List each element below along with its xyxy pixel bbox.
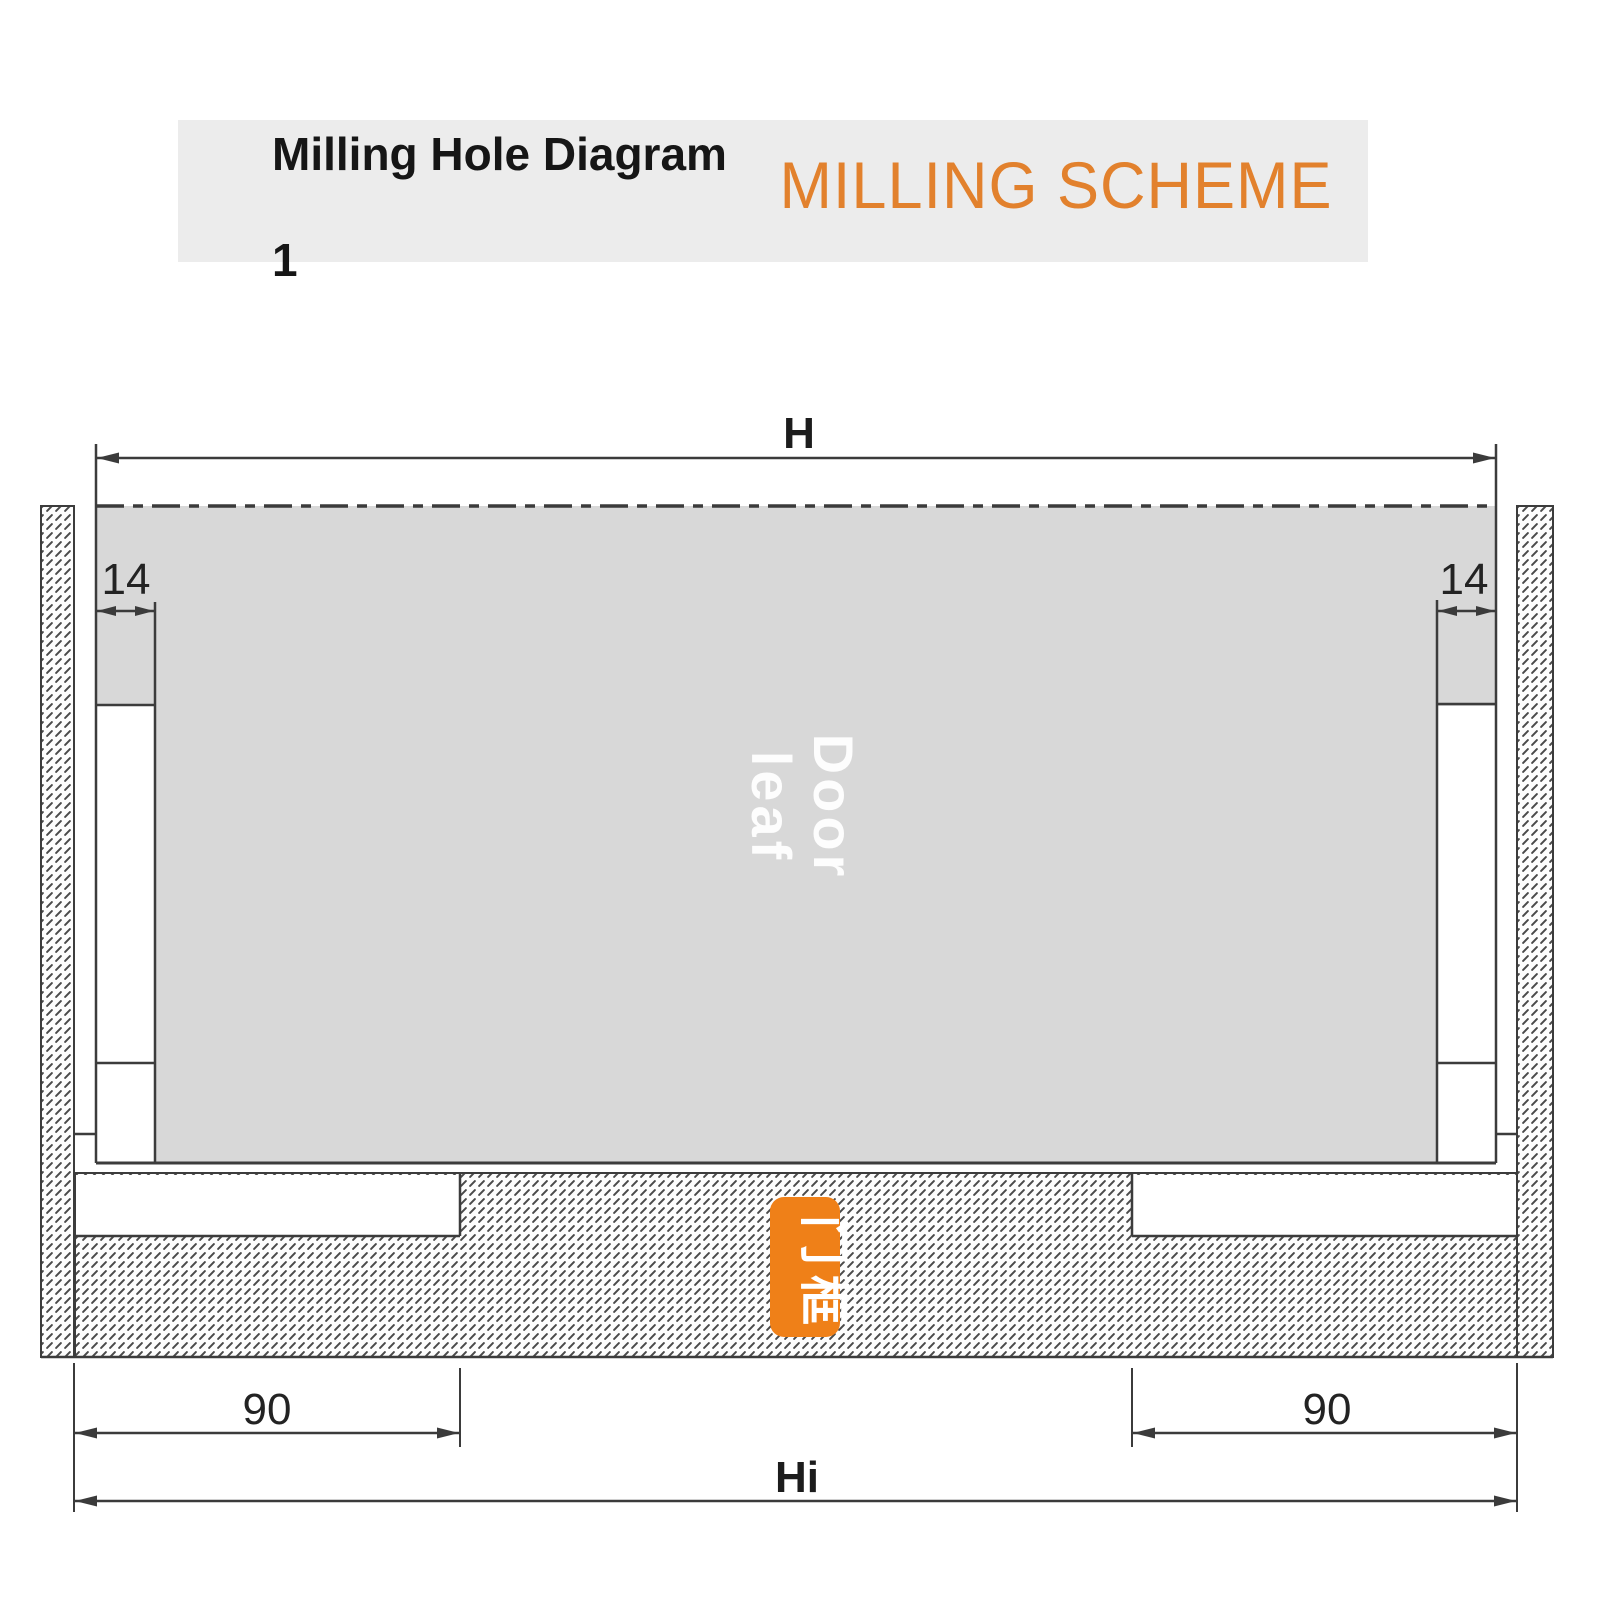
milling-diagram-page: Milling Hole Diagram 1 MILLING SCHEME	[0, 0, 1600, 1600]
dim-label-90-right: 90	[1303, 1385, 1352, 1434]
frame-stamp: 门框	[770, 1197, 851, 1337]
door-leaf-label-line2: leaf	[740, 751, 803, 864]
door-slot-right	[1438, 706, 1495, 1162]
door-leaf-label: Door leaf	[740, 734, 865, 881]
sill-notch-left	[76, 1175, 460, 1235]
arrowhead-left-icon	[75, 1496, 97, 1507]
dim-label-14-right: 14	[1440, 555, 1489, 604]
arrowhead-left-icon	[1133, 1428, 1155, 1439]
dim-label-Hi: Hi	[775, 1453, 819, 1502]
door-leaf-label-line1: Door	[802, 734, 865, 881]
arrowhead-right-icon	[1494, 1496, 1516, 1507]
dim-label-90-left: 90	[243, 1385, 292, 1434]
arrowhead-right-icon	[437, 1428, 459, 1439]
arrowhead-left-icon	[97, 453, 119, 464]
frame-right-jamb	[1517, 506, 1553, 1357]
milling-scheme-drawing: H 14 14 90	[0, 0, 1600, 1600]
arrowhead-right-icon	[1494, 1428, 1516, 1439]
stamp-text: 门框	[795, 1215, 851, 1335]
dim-label-14-left: 14	[102, 555, 151, 604]
arrowhead-right-icon	[1473, 453, 1495, 464]
sill-notch-right	[1132, 1175, 1516, 1235]
arrowhead-left-icon	[75, 1428, 97, 1439]
door-slot-left	[97, 706, 155, 1162]
frame-left-jamb	[41, 506, 74, 1357]
dim-label-H: H	[783, 409, 815, 458]
